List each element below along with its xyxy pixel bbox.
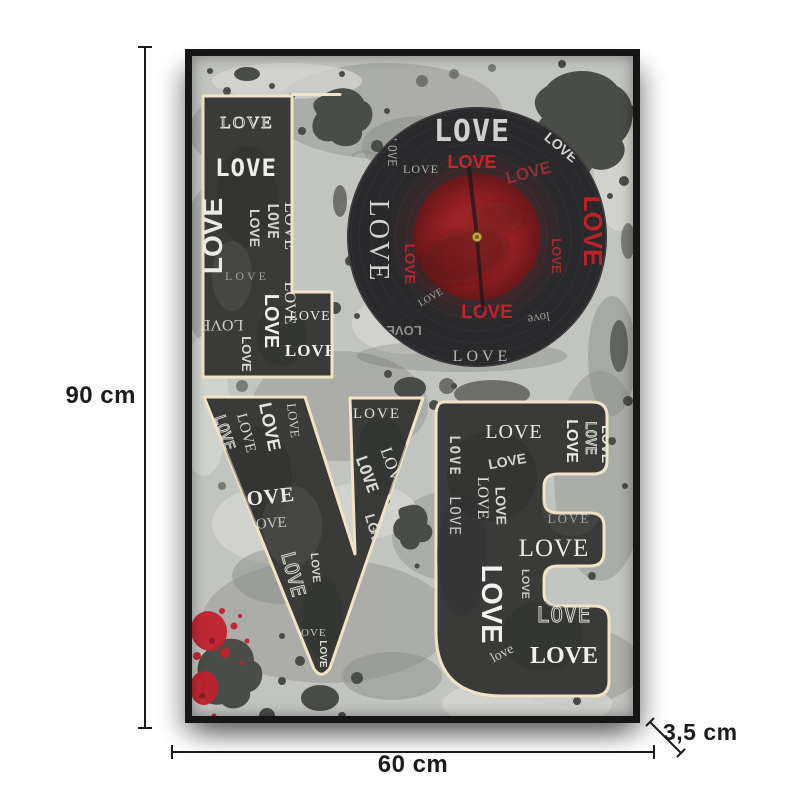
- artwork-frame: LOVELOVELOVELOVELOVELOVELOVELOVELOVELOVE…: [185, 49, 640, 723]
- love-word: LOVE: [563, 419, 580, 463]
- love-word: LOVE: [201, 316, 244, 333]
- love-word: LOVE: [247, 209, 263, 247]
- love-word: LOVE: [475, 565, 507, 644]
- love-word: LOVE: [474, 477, 491, 520]
- love-word: LOVE: [403, 162, 439, 176]
- love-word: LOVE: [537, 603, 592, 627]
- love-word: LOVE: [549, 238, 564, 274]
- artwork-canvas: LOVELOVELOVELOVELOVELOVELOVELOVELOVELOVE…: [192, 56, 633, 716]
- love-word: LOVE: [446, 435, 462, 477]
- love-word: LOVE: [447, 152, 496, 172]
- love-word: LOVE: [225, 269, 269, 283]
- love-word: LOVE: [285, 341, 337, 360]
- love-word: LOVE: [239, 336, 254, 372]
- love-word: LOVE: [264, 203, 282, 239]
- love-word: LOVE: [582, 421, 598, 455]
- love-word: LOVE: [260, 294, 282, 348]
- dimension-line: [144, 46, 146, 729]
- love-word: LOVE: [519, 569, 531, 599]
- love-word: LOVE: [363, 200, 394, 283]
- dimension-cap: [138, 727, 152, 729]
- love-word: LOVE: [548, 511, 591, 526]
- love-word: LOVE: [401, 244, 418, 285]
- love-word: LOVE: [434, 114, 510, 149]
- height-dimension-line: [138, 46, 152, 729]
- love-word: LOVE: [317, 640, 328, 668]
- love-word: LOVE: [492, 486, 509, 525]
- width-label: 60 cm: [313, 753, 513, 777]
- love-word: LOVE: [289, 309, 330, 324]
- love-word: LOVE: [215, 154, 277, 182]
- love-word: LOVE: [353, 406, 401, 422]
- love-word: LOVE: [446, 496, 464, 536]
- love-word: LOVE: [461, 302, 513, 323]
- product-dimension-diagram: LOVELOVELOVELOVELOVELOVELOVELOVELOVELOVE…: [0, 0, 800, 800]
- depth-label: 3,5 cm: [663, 721, 738, 744]
- love-word: LOVE: [485, 421, 542, 443]
- love-word: LOVE: [530, 643, 598, 669]
- height-label: 90 cm: [28, 384, 136, 408]
- letter-e: LOVELOVELOVELOVELOVELOVELOVELOVELOVELOVE…: [436, 402, 615, 696]
- love-word: LOVE: [519, 535, 590, 562]
- love-word: LOVE: [220, 113, 273, 132]
